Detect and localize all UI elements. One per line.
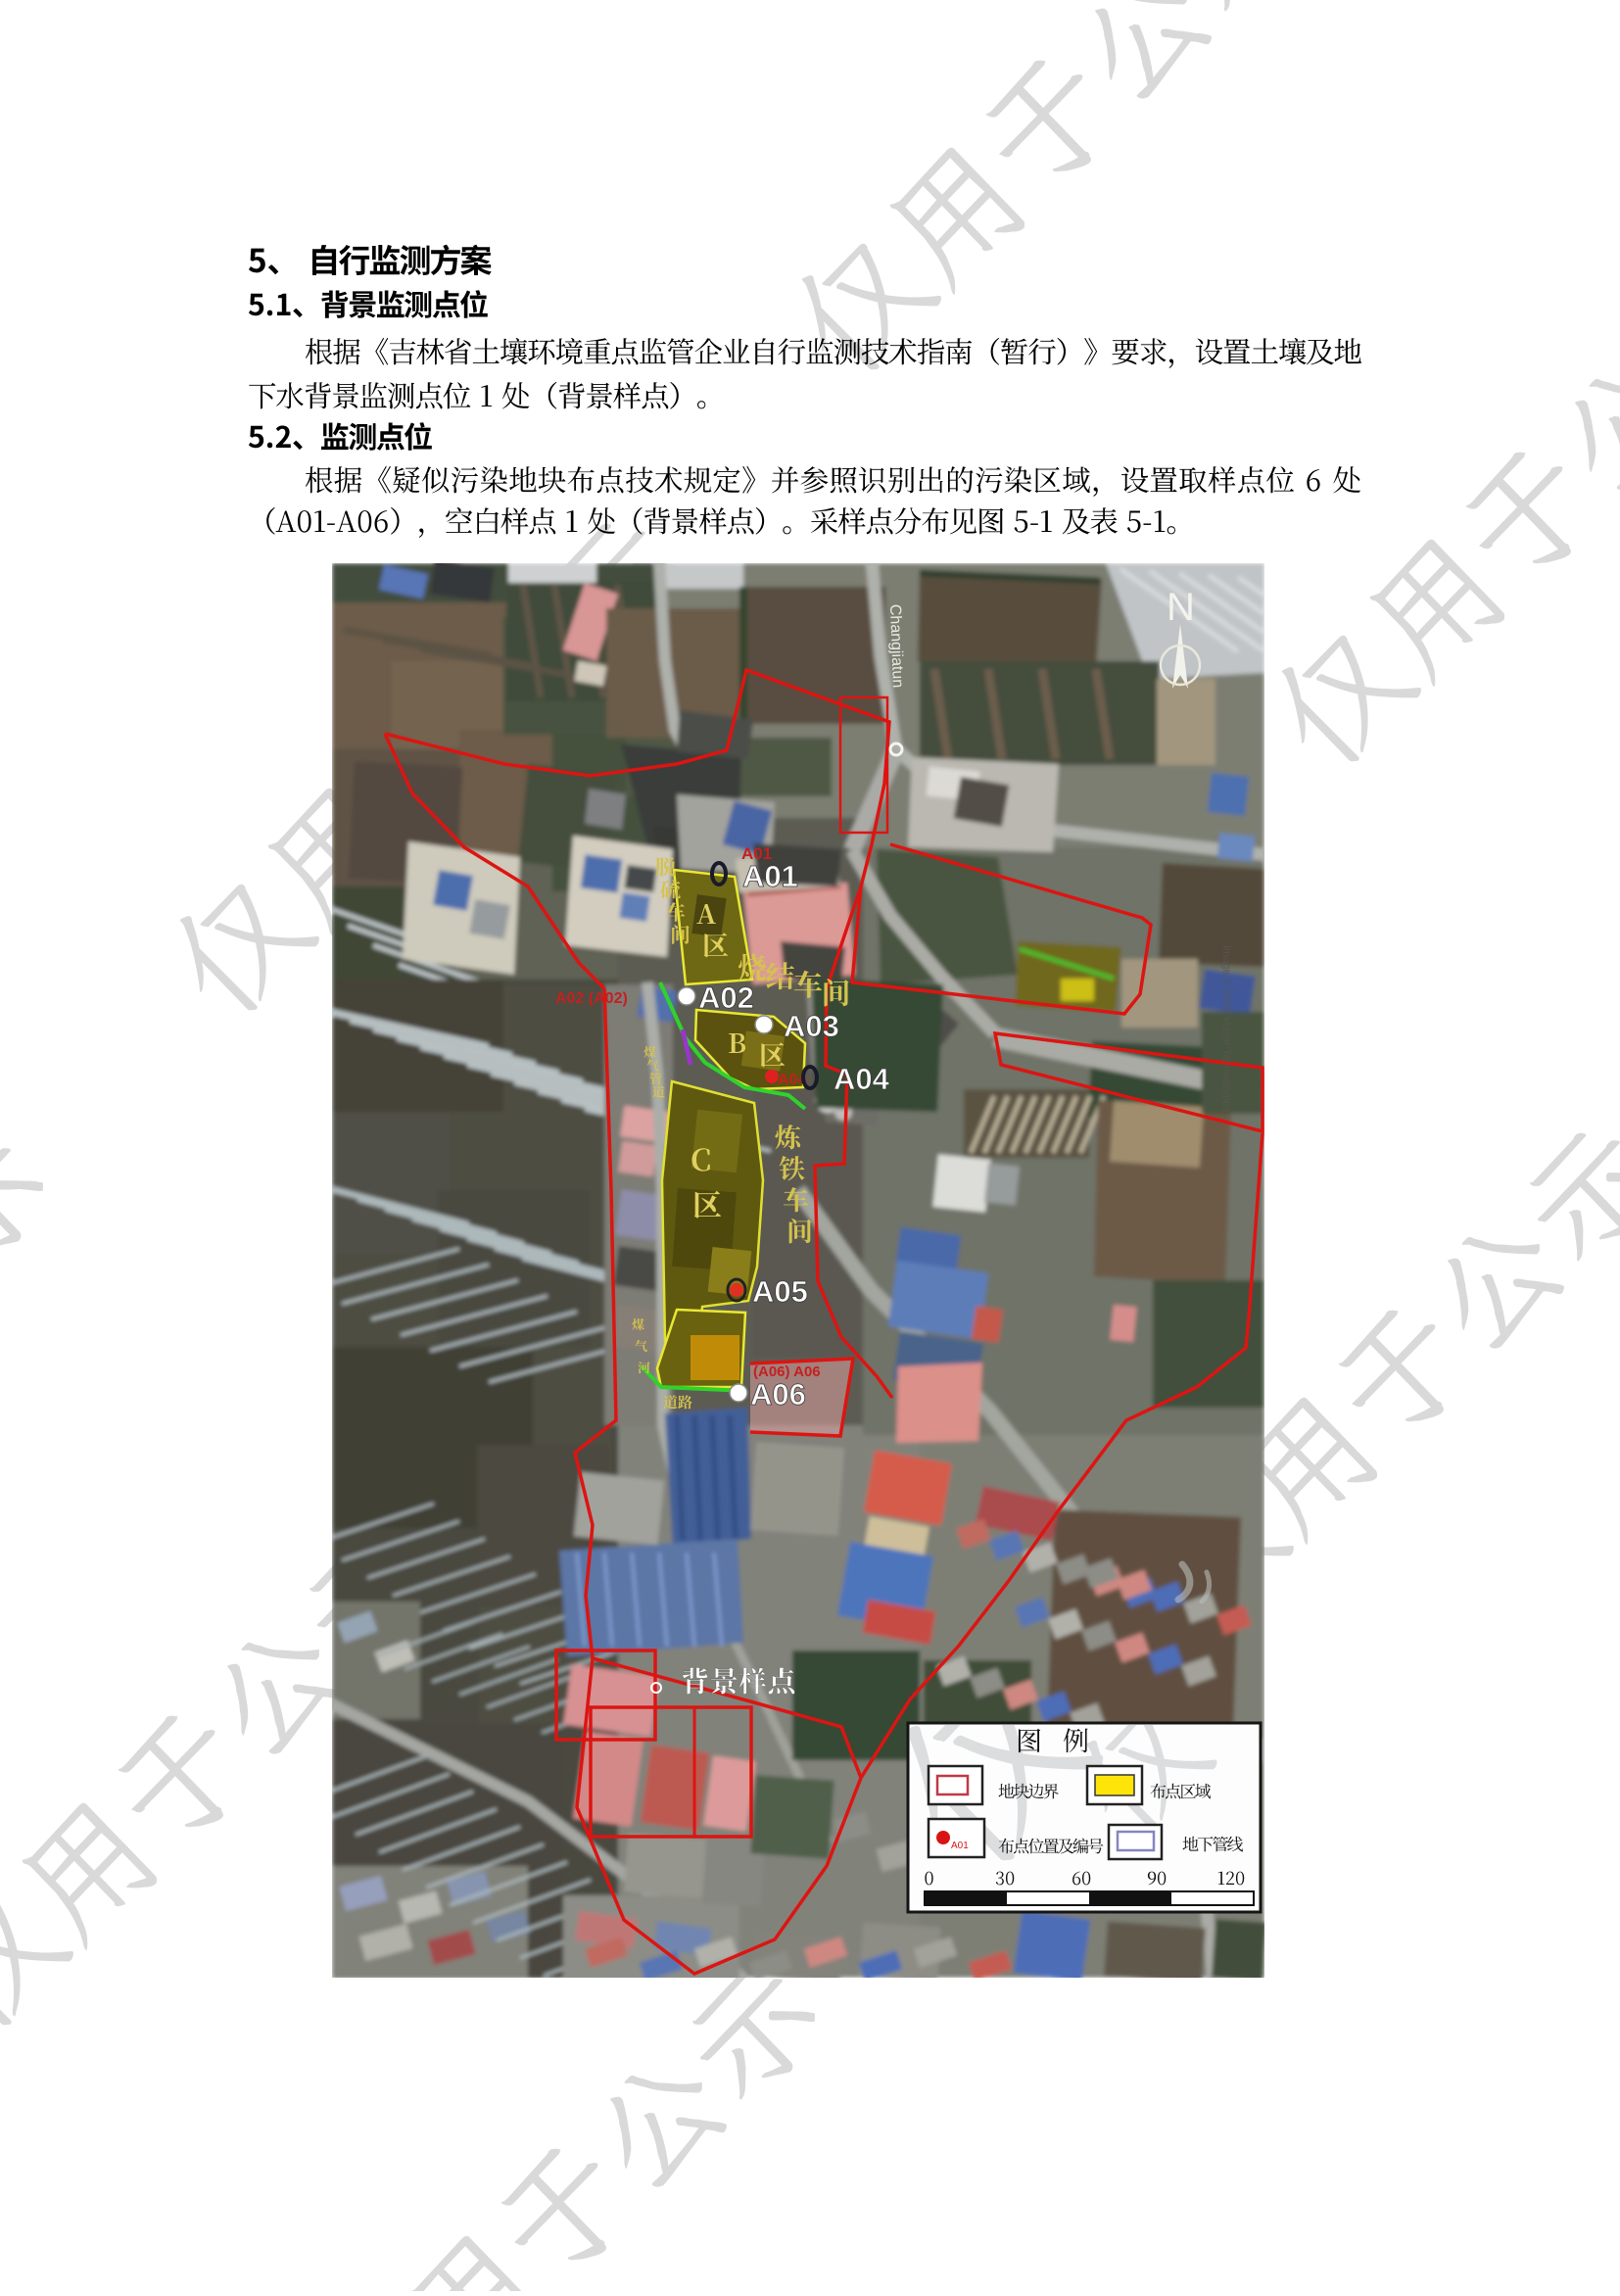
svg-text:N: N <box>1167 586 1195 629</box>
svg-text:Changjiatun: Changjiatun <box>886 604 906 689</box>
svg-text:A06: A06 <box>750 1377 806 1411</box>
svg-text:A01: A01 <box>951 1841 969 1851</box>
svg-text:Image © 2020 Maxar Technologie: Image © 2020 Maxar Technologies <box>1220 945 1232 1112</box>
svg-text:A04: A04 <box>834 1062 890 1096</box>
svg-text:A02 (A02): A02 (A02) <box>555 990 628 1007</box>
svg-text:A01: A01 <box>742 859 798 893</box>
svg-text:A03: A03 <box>784 1009 839 1043</box>
svg-text:A02: A02 <box>698 981 754 1015</box>
svg-text:A05: A05 <box>752 1274 808 1309</box>
